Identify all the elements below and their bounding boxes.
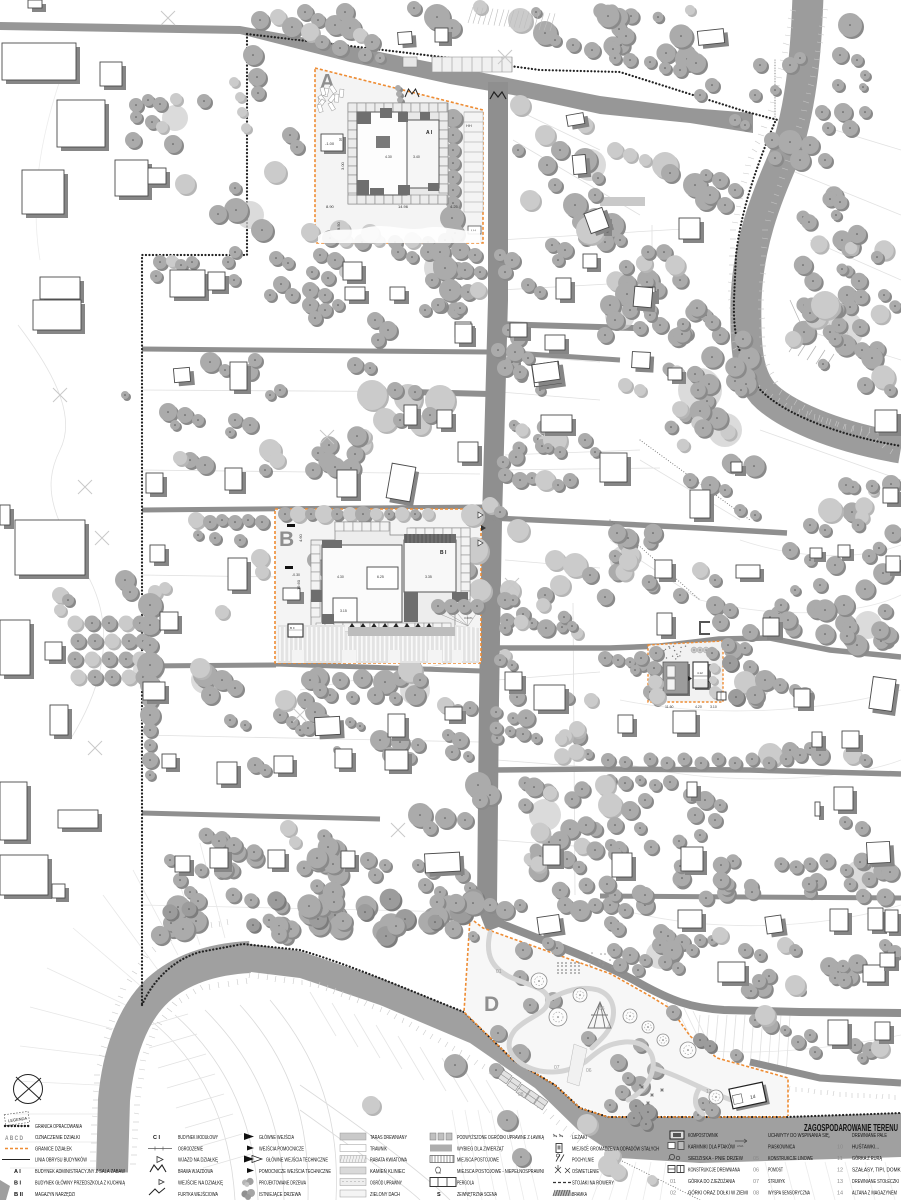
svg-text:SIEDZISKA - PNIE DRZEW: SIEDZISKA - PNIE DRZEW [688, 1156, 743, 1162]
svg-text:MIEJSCE GROMADZENIA ODPADÓW ST: MIEJSCE GROMADZENIA ODPADÓW STAŁYCH [572, 1146, 659, 1153]
svg-text:3.40: 3.40 [413, 155, 420, 159]
svg-text:D: D [484, 993, 499, 1016]
svg-text:11: 11 [837, 1156, 843, 1162]
svg-text:GŁÓWNE WEJŚCIA TECHNICZNE: GŁÓWNE WEJŚCIA TECHNICZNE [266, 1156, 328, 1164]
svg-text:12: 12 [706, 1089, 712, 1095]
svg-text:ZEWNĘTRZNA SCENA: ZEWNĘTRZNA SCENA [457, 1192, 497, 1198]
svg-text:BUDYNEK MODUŁOWY: BUDYNEK MODUŁOWY [178, 1135, 218, 1141]
svg-text:ISTNIEJĄCE DRZEWA: ISTNIEJĄCE DRZEWA [259, 1192, 301, 1198]
svg-text:HH: HH [466, 123, 472, 128]
svg-text:8.90: 8.90 [326, 204, 335, 209]
svg-text:3.00: 3.00 [340, 161, 345, 170]
svg-text:KOMPOSTOWNIK: KOMPOSTOWNIK [688, 1133, 718, 1139]
svg-text:4.25: 4.25 [450, 204, 459, 209]
svg-text:WEJŚCIE NA DZIAŁKĘ: WEJŚCIE NA DZIAŁKĘ [178, 1179, 223, 1187]
svg-text:WYBIEG DLA ZWIERZĄT: WYBIEG DLA ZWIERZĄT [457, 1147, 504, 1153]
svg-text:3.15: 3.15 [340, 609, 347, 613]
svg-text:4.12: 4.12 [697, 671, 703, 675]
svg-text:DREWNIANE STOŁECZKI: DREWNIANE STOŁECZKI [852, 1179, 899, 1185]
svg-text:KONSTRUKCJE LINOWE: KONSTRUKCJE LINOWE [768, 1156, 813, 1162]
svg-text:WYSPA SENSORYCZNA: WYSPA SENSORYCZNA [768, 1191, 810, 1197]
svg-text:MAGAZYN NARZĘDZI: MAGAZYN NARZĘDZI [35, 1192, 75, 1198]
svg-text:GŁÓWNE WEJŚCIA: GŁÓWNE WEJŚCIA [259, 1133, 294, 1141]
svg-text:11.60: 11.60 [665, 705, 674, 709]
svg-text:LINIA: LINIA [737, 1145, 744, 1148]
svg-text:05: 05 [753, 1156, 759, 1162]
svg-text:MIEJSCA POSTOJOWE - NIEPEŁNOSP: MIEJSCA POSTOJOWE - NIEPEŁNOSPRAWNI [457, 1169, 544, 1175]
svg-text:LINIA OBRYSU BUDYNKÓW: LINIA OBRYSU BUDYNKÓW [35, 1157, 87, 1164]
svg-text:ALTANA Z MAGAZYNEM: ALTANA Z MAGAZYNEM [852, 1191, 897, 1197]
svg-text:06: 06 [753, 1168, 759, 1174]
svg-text:A I: A I [426, 130, 433, 136]
svg-text:01: 01 [496, 969, 502, 975]
svg-text:SZAŁASY, TIPI, DOMKI: SZAŁASY, TIPI, DOMKI [852, 1168, 901, 1174]
svg-text:-1.00: -1.00 [325, 141, 335, 146]
svg-text:4.30: 4.30 [385, 155, 392, 159]
svg-text:TARAS DREWNIANY: TARAS DREWNIANY [370, 1135, 407, 1141]
svg-text:POCHYLNIE: POCHYLNIE [572, 1158, 594, 1164]
svg-text:06: 06 [586, 1068, 592, 1074]
svg-text:4.30: 4.30 [337, 575, 344, 579]
svg-text:13: 13 [837, 1179, 843, 1185]
svg-text:B I: B I [440, 550, 447, 556]
svg-text:3.35: 3.35 [425, 575, 432, 579]
svg-text:A B C D: A B C D [5, 1136, 24, 1142]
svg-text:10: 10 [837, 1145, 843, 1151]
svg-text:PIASKOWNICA: PIASKOWNICA [768, 1145, 795, 1151]
svg-text:POMOST: POMOST [768, 1168, 783, 1174]
svg-text:02: 02 [670, 1191, 676, 1197]
svg-text:GÓRKA Z RURĄ: GÓRKA Z RURĄ [852, 1155, 882, 1162]
svg-text:TRAWNIK: TRAWNIK [370, 1147, 387, 1153]
svg-text:ZAGOSPODAROWANIE TERENU: ZAGOSPODAROWANIE TERENU [804, 1123, 898, 1134]
svg-text:4.60: 4.60 [298, 533, 303, 542]
svg-text:B I: B I [14, 1181, 22, 1187]
svg-text:12: 12 [837, 1168, 843, 1174]
svg-text:MIEJSCA POSTOJOWE: MIEJSCA POSTOJOWE [457, 1158, 499, 1164]
svg-text:PODWYŻSZONE OGRÓDKI UPRAWNE Z: PODWYŻSZONE OGRÓDKI UPRAWNE Z ŁAWKĄ [457, 1134, 544, 1141]
svg-text:GRANICE DZIAŁEK: GRANICE DZIAŁEK [35, 1147, 72, 1153]
svg-text:BRAMKA: BRAMKA [572, 1192, 587, 1198]
svg-text:POMOCNICZE WEJŚCIA TECHNICZNE: POMOCNICZE WEJŚCIA TECHNICZNE [259, 1167, 331, 1175]
svg-text:07: 07 [554, 1065, 560, 1071]
svg-text:B: B [279, 528, 294, 551]
svg-text:C I: C I [153, 1135, 161, 1141]
svg-text:OGRODZENIE: OGRODZENIE [178, 1147, 203, 1153]
svg-text:RABATA KWIATOWA: RABATA KWIATOWA [370, 1158, 407, 1164]
svg-text:08: 08 [753, 1191, 759, 1197]
svg-text:4.20: 4.20 [695, 705, 702, 709]
svg-text:08: 08 [518, 1092, 524, 1098]
svg-text:LEŻAKI: LEŻAKI [572, 1134, 587, 1141]
svg-text:STOJAKI NA ROWERY: STOJAKI NA ROWERY [572, 1181, 614, 1187]
svg-text:GÓRKA DO ZJEŻDŻANIA: GÓRKA DO ZJEŻDŻANIA [688, 1178, 735, 1185]
svg-text:S: S [339, 137, 342, 142]
svg-text:KARMNIKI DLA PTAKÓW: KARMNIKI DLA PTAKÓW [688, 1144, 735, 1151]
svg-text:OZNACZENIE DZIAŁKI: OZNACZENIE DZIAŁKI [35, 1135, 80, 1141]
svg-text:-0.30: -0.30 [292, 573, 300, 577]
svg-text:3.00%: 3.00% [464, 616, 473, 620]
svg-text:05: 05 [599, 1006, 605, 1012]
svg-text:01: 01 [670, 1179, 676, 1185]
svg-text:OŚWIETLENIE: OŚWIETLENIE [572, 1167, 599, 1175]
svg-text:ZIELONY DACH: ZIELONY DACH [370, 1192, 400, 1198]
svg-text:WEJŚCIA POMOCNICZE: WEJŚCIA POMOCNICZE [259, 1145, 304, 1153]
svg-text:07: 07 [753, 1179, 759, 1185]
svg-text:S: S [437, 1192, 441, 1198]
svg-text:9.50: 9.50 [336, 221, 341, 230]
svg-text:GRANICA OPRACOWANIA: GRANICA OPRACOWANIA [35, 1124, 82, 1130]
svg-text:KONSTRUKCJE DREWNIANA: KONSTRUKCJE DREWNIANA [688, 1168, 740, 1174]
svg-text:PERGOLA: PERGOLA [457, 1181, 474, 1187]
svg-text:FURTKA WEJŚCIOWA: FURTKA WEJŚCIOWA [178, 1190, 218, 1198]
svg-text:PROJEKTOWANE DRZEWA: PROJEKTOWANE DRZEWA [259, 1181, 306, 1187]
svg-text:14: 14 [837, 1191, 843, 1197]
svg-text:GÓRKI ORAZ DOŁKI W ZIEMI: GÓRKI ORAZ DOŁKI W ZIEMI [688, 1190, 748, 1197]
svg-text:OGRÓD UPRAWNY: OGRÓD UPRAWNY [370, 1180, 402, 1187]
svg-text:14.96: 14.96 [398, 204, 409, 209]
svg-text:STRUMYK: STRUMYK [768, 1179, 785, 1185]
svg-text:KAMIEŃ KLINIEC: KAMIEŃ KLINIEC [370, 1168, 405, 1175]
svg-text:B II: B II [290, 626, 295, 630]
svg-text:BUDYNEK ADMINISTRACYJNY Z SALA: BUDYNEK ADMINISTRACYJNY Z SALA ZABAW [35, 1169, 125, 1175]
svg-text:19.60: 19.60 [296, 579, 301, 590]
svg-text:HUŚTAWKI...: HUŚTAWKI... [852, 1143, 879, 1151]
svg-text:B II: B II [14, 1192, 23, 1198]
svg-text:BUDYNEK GŁÓWNY PRZEDSZKOLA Z K: BUDYNEK GŁÓWNY PRZEDSZKOLA Z KUCHNIĄ [35, 1180, 125, 1187]
svg-text:3.10: 3.10 [710, 705, 717, 709]
svg-text:WJAZD NA DZIAŁKĘ: WJAZD NA DZIAŁKĘ [178, 1158, 218, 1164]
svg-text:6.25: 6.25 [377, 575, 384, 579]
svg-text:BRAMA WJAZDOWA: BRAMA WJAZDOWA [178, 1169, 213, 1175]
svg-text:A I: A I [14, 1169, 21, 1175]
